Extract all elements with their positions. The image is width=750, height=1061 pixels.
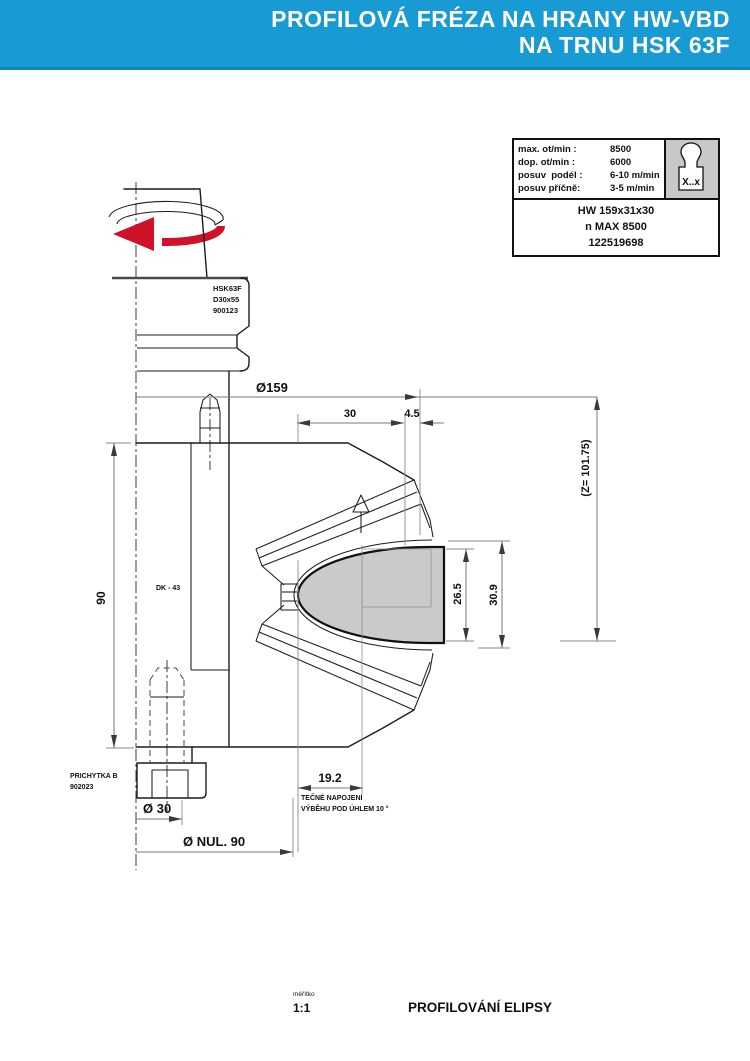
spec-row-rec-rpm: dop. ot/min : 6000 bbox=[518, 156, 664, 169]
rotation-arc-red bbox=[162, 226, 221, 242]
dim-gauge-z: (Z= 101.75) bbox=[560, 397, 616, 641]
label-900123: 900123 bbox=[213, 306, 238, 315]
dim-label-19-2: 19.2 bbox=[318, 771, 342, 785]
dim-label-dia159: Ø159 bbox=[256, 380, 288, 395]
dim-label-dia30: Ø 30 bbox=[143, 801, 171, 816]
dim-label-26-5: 26.5 bbox=[452, 583, 464, 604]
dim-label-30: 30 bbox=[344, 408, 356, 420]
spec-row-feed-long: posuv podél : 6-10 m/min bbox=[518, 169, 664, 182]
rotation-arrowhead bbox=[113, 217, 154, 251]
label-d30x55: D30x55 bbox=[213, 295, 239, 304]
footer: měřítko 1:1 PROFILOVÁNÍ ELIPSY bbox=[293, 991, 552, 1015]
spec-id-block: HW 159x31x30 n MAX 8500 122519698 bbox=[514, 198, 718, 255]
rotation-band-inner bbox=[117, 211, 215, 225]
profile-fill bbox=[298, 547, 444, 643]
spec-table: max. ot/min : 8500 dop. ot/min : 6000 po… bbox=[512, 138, 720, 257]
clamp-inner bbox=[152, 770, 188, 798]
dim-height90: 90 bbox=[94, 443, 134, 748]
spec-row-max-rpm: max. ot/min : 8500 bbox=[518, 143, 664, 156]
cutter-icon: X..x bbox=[666, 140, 716, 194]
tool-code: 122519698 bbox=[514, 235, 718, 251]
icon-label: X..x bbox=[682, 177, 700, 188]
dim-label-dia-nul: Ø NUL. 90 bbox=[183, 834, 245, 849]
body-top-edge bbox=[136, 443, 414, 480]
dim-26-5: 26.5 bbox=[446, 549, 474, 641]
label-hsk: HSK63F bbox=[213, 284, 242, 293]
label-902023: 902023 bbox=[70, 784, 93, 791]
clamp-block bbox=[137, 763, 206, 798]
dim-dia30: Ø 30 bbox=[136, 800, 182, 825]
spec-row-feed-cross: posuv příčně: 3-5 m/min bbox=[518, 182, 664, 195]
dim-label-45: 4.5 bbox=[404, 408, 419, 420]
rotation-arrow bbox=[109, 201, 223, 251]
label-prichytka: PRICHYTKA B bbox=[70, 773, 118, 780]
hsk-holder bbox=[112, 189, 249, 746]
tool-pictogram: X..x bbox=[664, 140, 718, 198]
dim-label-z: (Z= 101.75) bbox=[580, 439, 592, 497]
dim-30-45: 30 4.5 bbox=[297, 408, 444, 545]
dim-label-90: 90 bbox=[94, 591, 108, 605]
drawing-title: PROFILOVÁNÍ ELIPSY bbox=[408, 1000, 552, 1015]
dim-label-30-9: 30.9 bbox=[488, 584, 500, 605]
ellipse-profile bbox=[281, 545, 444, 793]
clamp-assembly bbox=[137, 668, 206, 798]
body-bottom-edge bbox=[136, 710, 414, 747]
tool-nmax: n MAX 8500 bbox=[514, 219, 718, 235]
page: PROFILOVÁ FRÉZA NA HRANY HW-VBD NA TRNU … bbox=[0, 0, 750, 1061]
scale-value: 1:1 bbox=[293, 1001, 311, 1015]
spec-rows: max. ot/min : 8500 dop. ot/min : 6000 po… bbox=[514, 140, 664, 198]
note-line1: TEČNÉ NAPOJENÍ bbox=[301, 793, 364, 802]
scale-label: měřítko bbox=[293, 991, 315, 998]
note-line2: VÝBĚHU POD ÚHLEM 10 ° bbox=[301, 804, 389, 813]
part-labels: HSK63F D30x55 900123 DK - 43 PRICHYTKA B… bbox=[70, 284, 242, 791]
tool-model: HW 159x31x30 bbox=[514, 203, 718, 219]
label-dk43: DK - 43 bbox=[156, 585, 180, 592]
